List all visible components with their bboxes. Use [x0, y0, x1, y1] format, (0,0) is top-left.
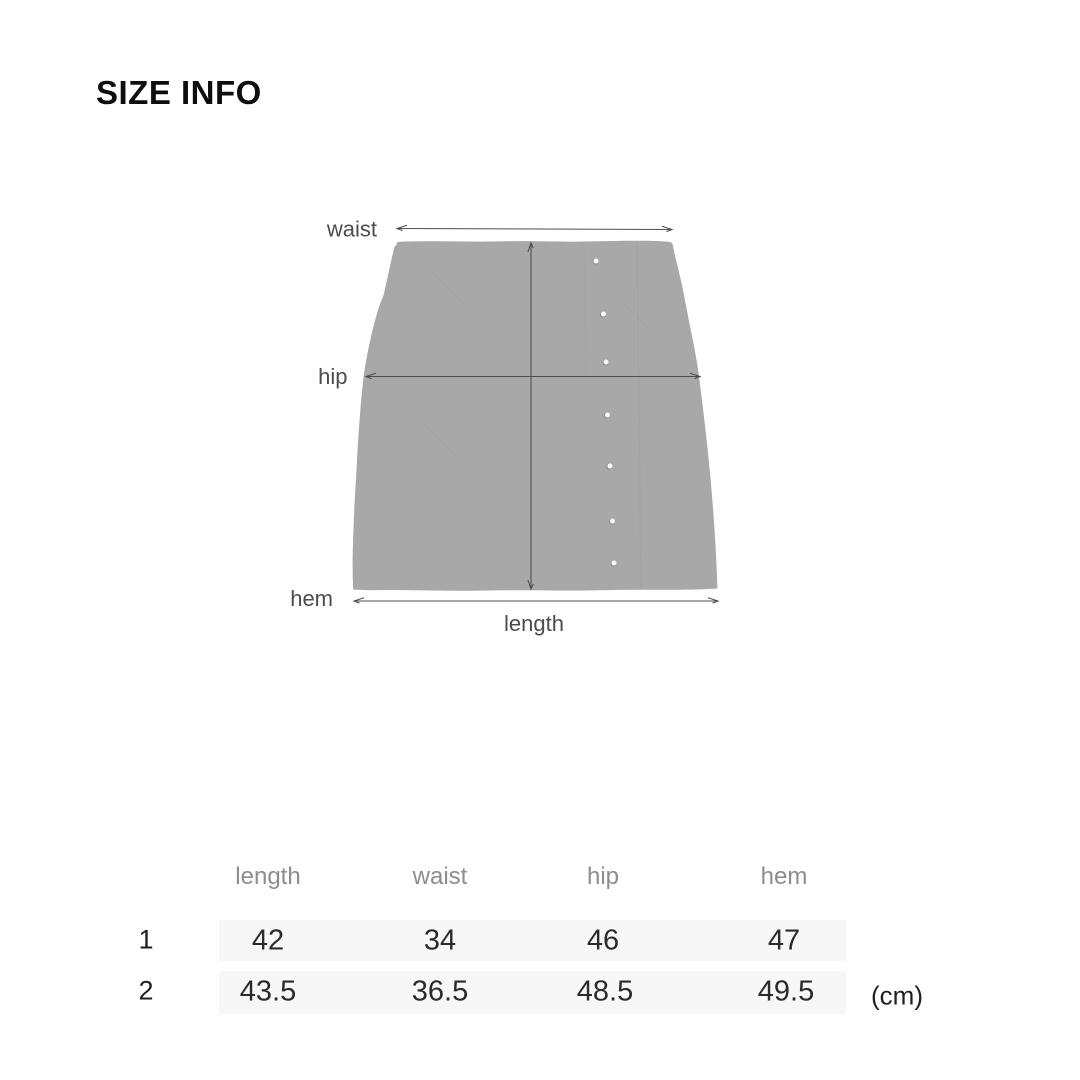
- svg-text:hip: hip: [318, 364, 347, 389]
- svg-text:length: length: [504, 611, 564, 636]
- svg-text:waist: waist: [326, 217, 377, 242]
- svg-text:hem: hem: [290, 586, 333, 611]
